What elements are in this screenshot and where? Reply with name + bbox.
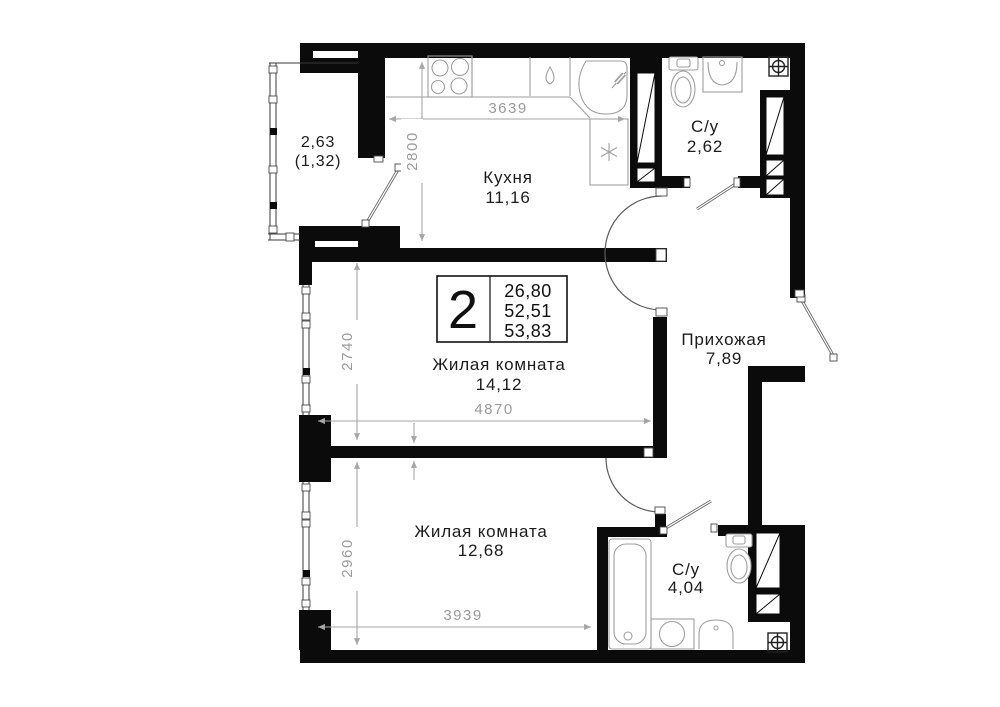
balcony-glazing bbox=[268, 63, 358, 241]
kitchen-area-label: 11,16 bbox=[485, 188, 530, 207]
hallway-area-label: 7,89 bbox=[706, 349, 742, 368]
room-bath-top: С/у 2,62 bbox=[687, 117, 723, 156]
area-living-label: 26,80 bbox=[504, 281, 552, 301]
rooms-count-label: 2 bbox=[448, 280, 478, 340]
door-bath-top bbox=[684, 178, 740, 209]
dimension-kitchen-depth: 2800 bbox=[401, 62, 423, 241]
bath-top-name-label: С/у bbox=[691, 117, 719, 136]
duct-shaft-bath-top bbox=[760, 90, 790, 198]
door-bath-bottom bbox=[660, 501, 717, 534]
room-bath-bottom: С/у 4,04 bbox=[668, 560, 704, 597]
door-entrance bbox=[795, 290, 837, 361]
balcony-area-reduced-label: (1,32) bbox=[295, 153, 342, 170]
area-total-label: 53,83 bbox=[504, 321, 552, 341]
bathtub-icon bbox=[609, 539, 651, 649]
bath-bottom-name-label: С/у bbox=[672, 560, 700, 579]
living1-area-label: 14,12 bbox=[476, 375, 523, 394]
duct-shaft-bath-bottom bbox=[748, 525, 790, 622]
window-living1 bbox=[302, 285, 310, 415]
floor-plan-drawing: 3639 2800 4870 2740 3939 2960 2,63 (1,32… bbox=[0, 0, 1000, 707]
kitchen-name-label: Кухня bbox=[483, 168, 533, 187]
area-usable-label: 52,51 bbox=[504, 301, 552, 321]
dim-label: 2800 bbox=[404, 131, 421, 170]
dim-label: 3939 bbox=[443, 607, 482, 624]
room-living2: Жилая комната 12,68 bbox=[414, 522, 547, 560]
dim-label: 2960 bbox=[339, 538, 356, 577]
living2-area-label: 12,68 bbox=[458, 541, 505, 560]
bath-top-area-label: 2,62 bbox=[687, 137, 723, 156]
note-asterisk-icon bbox=[601, 143, 617, 161]
balcony-area-label: 2,63 bbox=[301, 134, 335, 151]
room-kitchen: Кухня 11,16 bbox=[483, 168, 533, 207]
duct-shaft-kitchen bbox=[630, 58, 662, 188]
dim-label: 3639 bbox=[488, 100, 527, 117]
toilet-bottom-icon bbox=[726, 534, 752, 583]
ventilation-bottom-icon bbox=[768, 633, 787, 652]
room-balcony: 2,63 (1,32) bbox=[295, 134, 342, 170]
room-living1: Жилая комната 14,12 bbox=[432, 355, 565, 394]
dimension-living2-width: 3939 bbox=[318, 607, 591, 627]
washing-machine-icon bbox=[651, 619, 694, 649]
window-living2 bbox=[302, 482, 310, 610]
living1-name-label: Жилая комната bbox=[432, 355, 565, 374]
room-hallway: Прихожая 7,89 bbox=[681, 330, 766, 368]
kitchen-sink-icon bbox=[546, 67, 554, 84]
dim-label: 4870 bbox=[474, 401, 513, 418]
toilet-top-icon bbox=[669, 57, 698, 107]
hallway-name-label: Прихожая bbox=[681, 330, 766, 349]
washbasin-bottom-icon bbox=[699, 620, 733, 649]
corner-sink-icon bbox=[579, 61, 627, 114]
ventilation-top-icon bbox=[769, 57, 788, 76]
washbasin-top-icon bbox=[703, 57, 742, 92]
dim-label: 2740 bbox=[339, 331, 356, 370]
dimension-living1-width: 4870 bbox=[318, 401, 651, 421]
dimension-living1-depth: 2740 bbox=[336, 263, 358, 440]
stove-icon bbox=[428, 56, 472, 97]
bath-bottom-area-label: 4,04 bbox=[668, 578, 704, 597]
living2-name-label: Жилая комната bbox=[414, 522, 547, 541]
dimension-living2-depth: 2960 bbox=[336, 462, 358, 645]
unit-info-badge: 2 26,80 52,51 53,83 bbox=[437, 276, 567, 342]
floor-plan-page: 3639 2800 4870 2740 3939 2960 2,63 (1,32… bbox=[0, 0, 1000, 707]
door-balcony bbox=[362, 156, 402, 227]
